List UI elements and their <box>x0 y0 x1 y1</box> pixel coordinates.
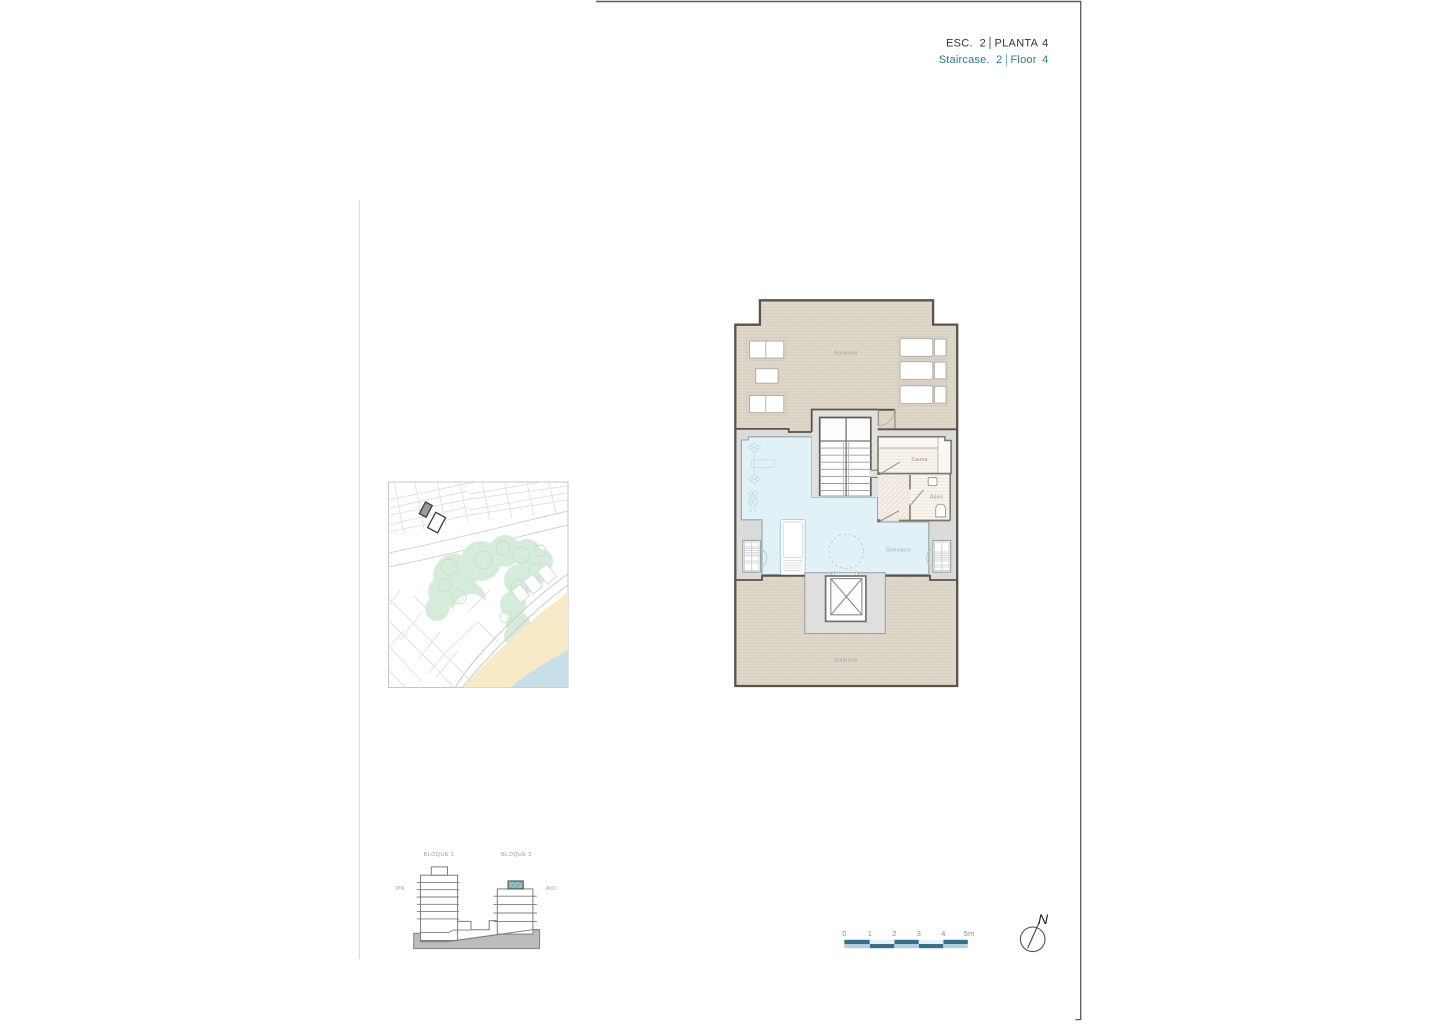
svg-text:2: 2 <box>892 929 896 938</box>
svg-text:Gimnasio: Gimnasio <box>886 548 911 554</box>
svg-text:4: 4 <box>941 929 945 938</box>
svg-text:BLOQUE 1: BLOQUE 1 <box>424 852 455 858</box>
svg-text:N: N <box>1038 911 1049 927</box>
svg-text:4: 4 <box>1042 38 1048 50</box>
svg-text:AVD: AVD <box>546 886 556 892</box>
svg-text:4: 4 <box>1042 54 1048 66</box>
svg-text:Solarium: Solarium <box>834 658 858 664</box>
svg-text:BLOQUE 2: BLOQUE 2 <box>501 852 532 858</box>
svg-text:5m: 5m <box>964 929 974 938</box>
svg-text:Aseo: Aseo <box>930 495 943 501</box>
svg-text:PLANTA: PLANTA <box>995 38 1039 50</box>
svg-text:PIN: PIN <box>396 886 405 892</box>
svg-text:Sauna: Sauna <box>911 457 928 463</box>
svg-text:1: 1 <box>868 929 872 938</box>
svg-text:3: 3 <box>917 929 921 938</box>
svg-text:0: 0 <box>842 929 846 938</box>
svg-text:Staircase. 2: Staircase. 2 <box>939 54 1003 66</box>
svg-text:Solarium: Solarium <box>834 351 858 357</box>
svg-text:ESC. 2: ESC. 2 <box>946 38 986 50</box>
svg-text:Floor: Floor <box>1011 54 1037 66</box>
